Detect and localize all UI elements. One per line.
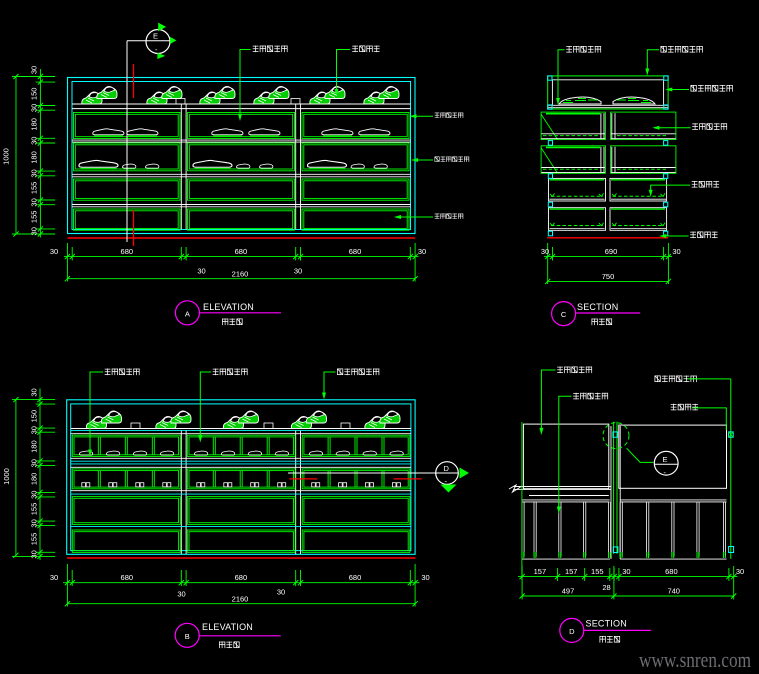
svg-text:750: 750 [602,272,615,281]
svg-text:SECTION: SECTION [577,302,618,312]
svg-text:A: A [185,309,190,318]
svg-text:ELEVATION: ELEVATION [202,622,253,632]
svg-text:2160: 2160 [232,270,249,279]
svg-text:www.snren.com: www.snren.com [639,647,751,672]
svg-text:D: D [569,627,575,636]
svg-text:C: C [561,310,567,319]
svg-text:30: 30 [50,573,58,582]
svg-text:157: 157 [534,567,547,576]
svg-text:680: 680 [121,247,134,256]
svg-text:680: 680 [349,247,362,256]
svg-text:30: 30 [736,567,744,576]
svg-text:30: 30 [30,137,39,145]
svg-text:30: 30 [541,247,549,256]
svg-text:680: 680 [349,573,362,582]
svg-text:157: 157 [565,567,578,576]
svg-text:D: D [444,464,450,473]
svg-text:30: 30 [30,169,39,177]
svg-text:740: 740 [667,587,680,596]
svg-text:180: 180 [30,473,39,486]
svg-text:30: 30 [177,590,185,599]
svg-text:155: 155 [30,211,39,224]
svg-text:30: 30 [418,247,426,256]
svg-text:SECTION: SECTION [586,619,627,629]
svg-text:28: 28 [602,583,610,592]
svg-text:30: 30 [30,426,39,434]
svg-text:30: 30 [30,198,39,206]
svg-text:ELEVATION: ELEVATION [203,302,254,312]
svg-text:180: 180 [30,118,39,131]
svg-text:155: 155 [30,182,39,195]
svg-text:150: 150 [30,410,39,423]
svg-text:30: 30 [30,104,39,112]
svg-text:30: 30 [277,588,285,597]
svg-text:30: 30 [672,247,680,256]
svg-text:30: 30 [30,550,39,558]
svg-text:30: 30 [197,267,205,276]
svg-text:680: 680 [235,573,248,582]
svg-text:B: B [185,632,190,641]
svg-text:30: 30 [30,66,39,74]
svg-text:30: 30 [421,573,429,582]
svg-text:1000: 1000 [2,148,11,165]
svg-text:690: 690 [605,247,618,256]
svg-text:1000: 1000 [2,468,11,485]
svg-text:E: E [663,455,668,464]
svg-text:30: 30 [50,247,58,256]
svg-text:680: 680 [665,567,678,576]
svg-text:150: 150 [30,88,39,101]
svg-text:E: E [153,32,158,41]
svg-text:30: 30 [30,227,39,235]
svg-text:30: 30 [30,519,39,527]
svg-text:30: 30 [294,267,302,276]
svg-text:680: 680 [235,247,248,256]
svg-text:30: 30 [30,491,39,499]
svg-text:180: 180 [30,440,39,453]
svg-text:155: 155 [30,533,39,546]
svg-text:155: 155 [591,567,604,576]
svg-text:497: 497 [562,587,575,596]
svg-text:680: 680 [121,573,134,582]
svg-text:2160: 2160 [232,595,249,604]
svg-text:155: 155 [30,503,39,516]
svg-text:30: 30 [30,459,39,467]
svg-text:30: 30 [622,567,630,576]
svg-text:30: 30 [30,388,39,396]
svg-text:180: 180 [30,151,39,164]
